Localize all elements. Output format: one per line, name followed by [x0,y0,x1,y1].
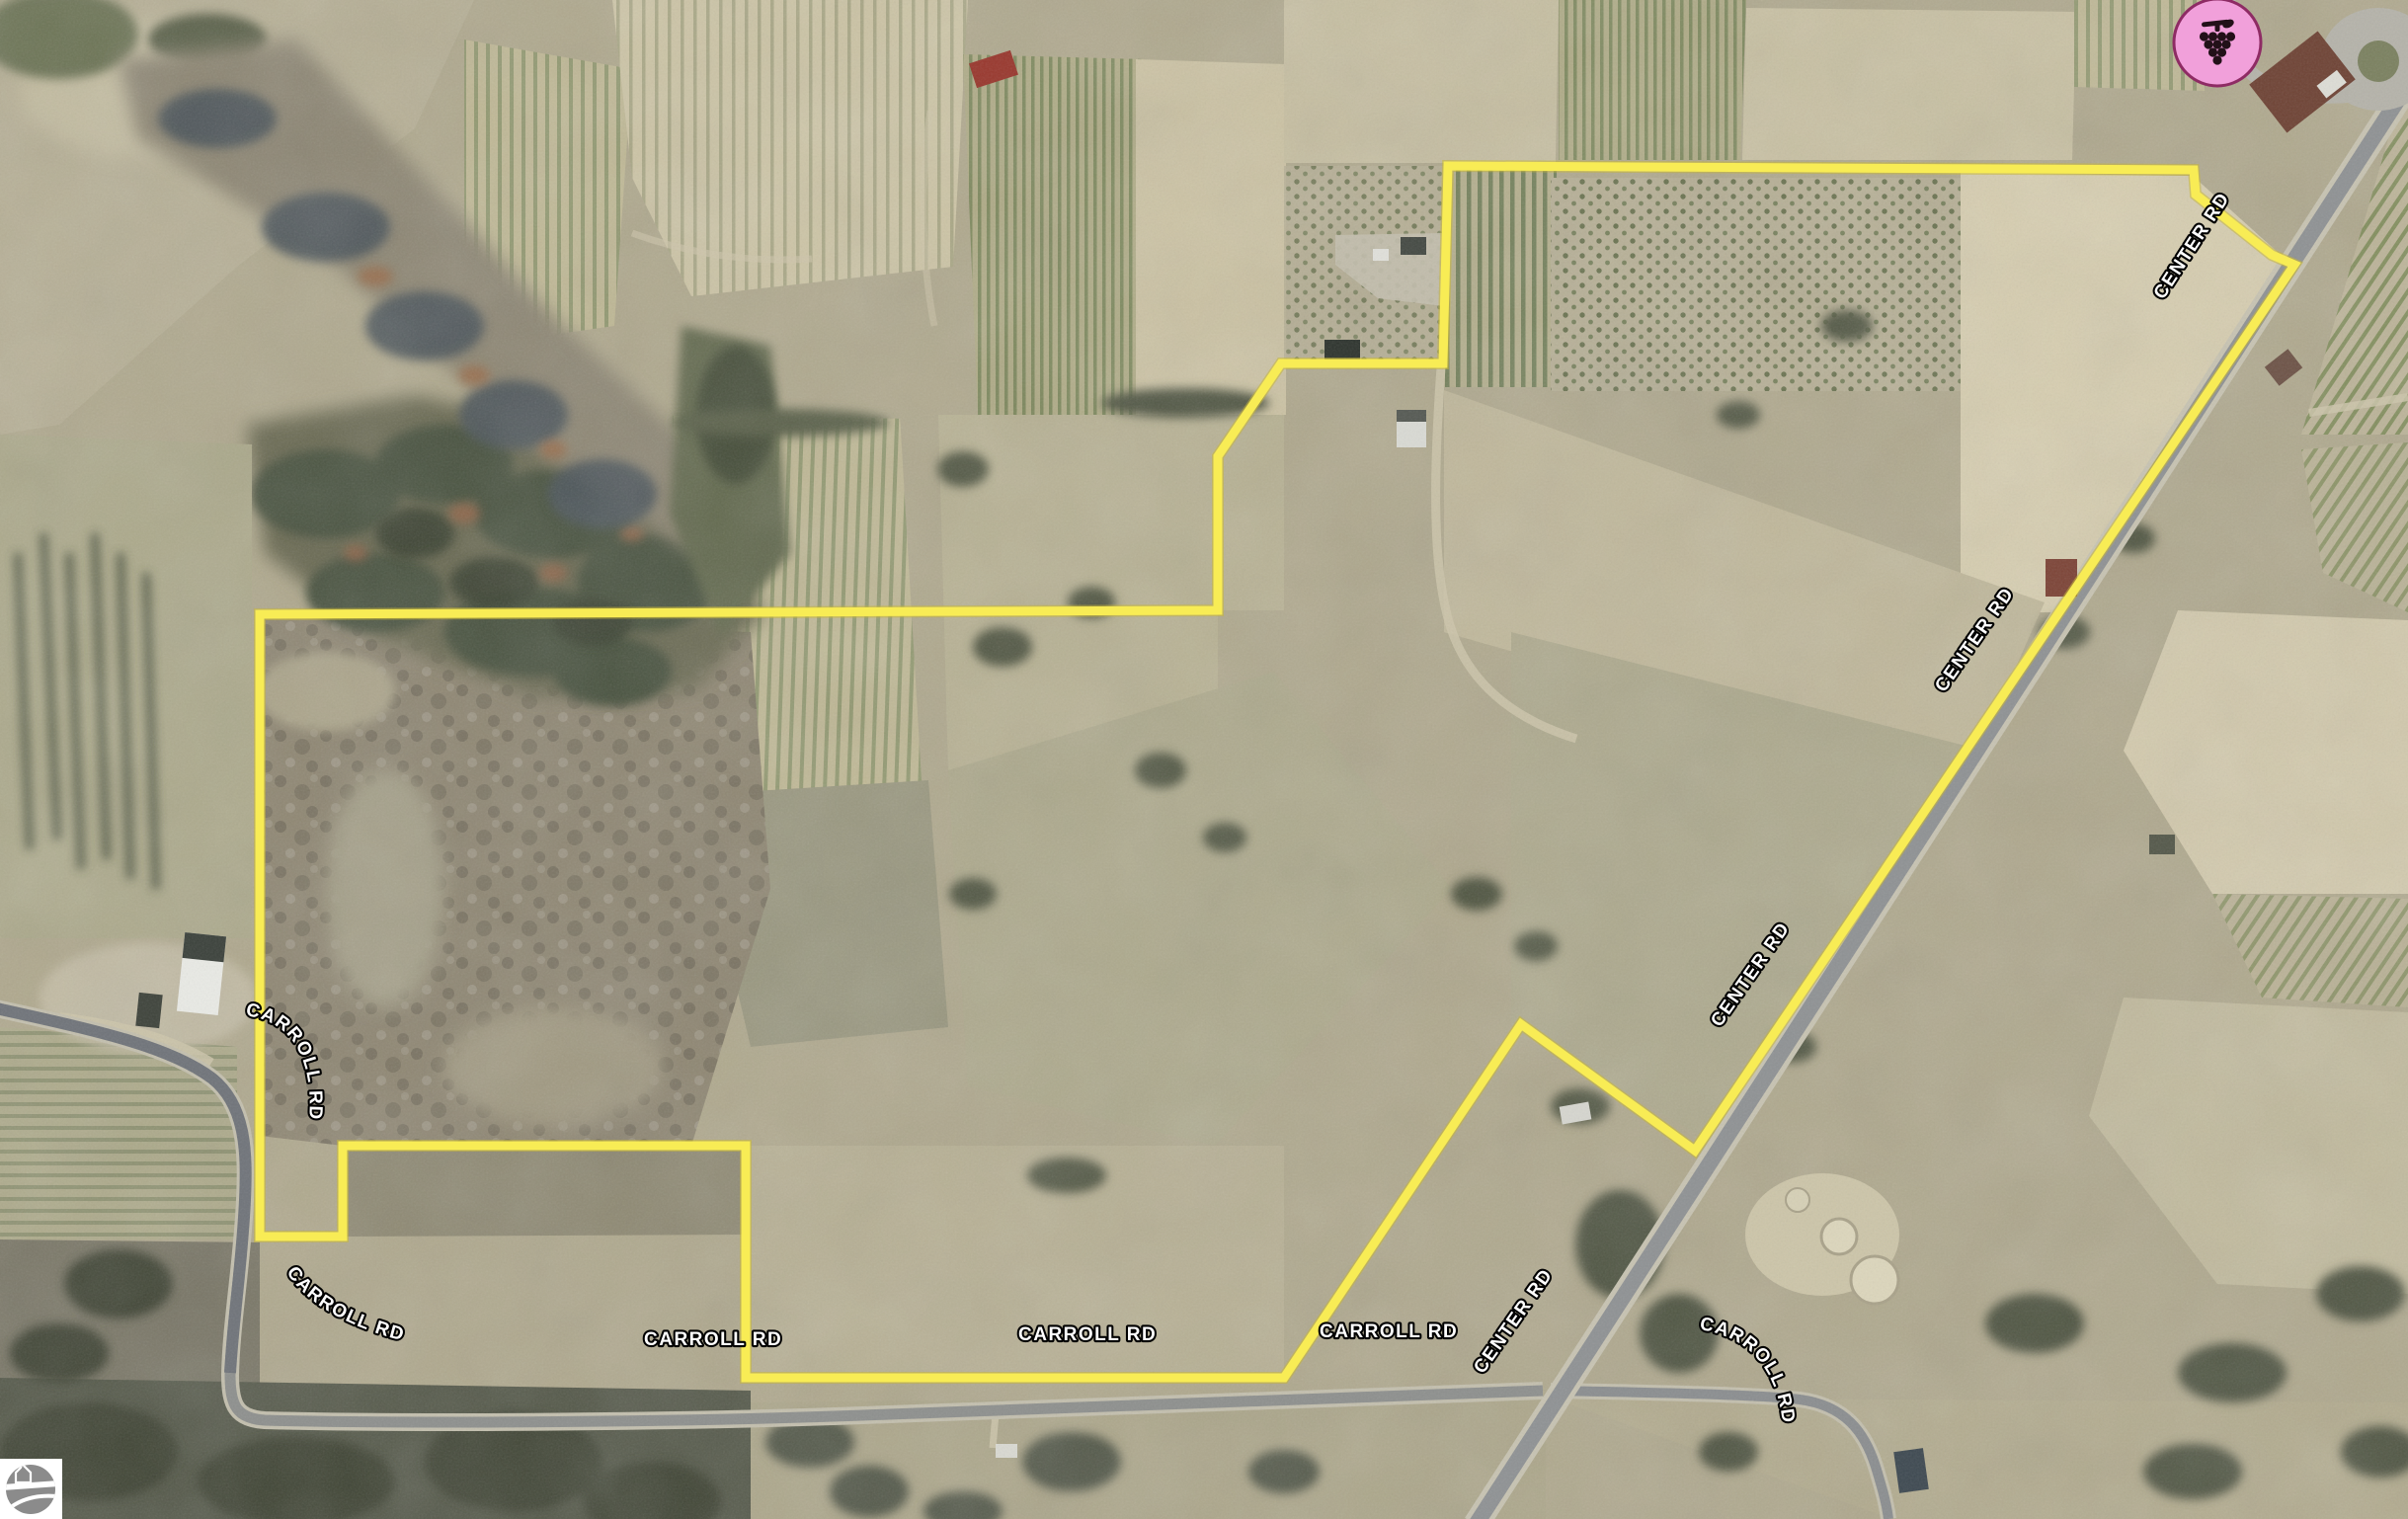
photo-grain-overlay [0,0,2408,1519]
attribution-logo [0,1459,62,1519]
aerial-map[interactable]: CARROLL RD CARROLL RD CARROLL RD CARROLL… [0,0,2408,1519]
carroll-rd-label-3: CARROLL RD [644,1329,782,1350]
winery-marker[interactable] [2174,0,2261,86]
carroll-rd-label-4: CARROLL RD [1018,1324,1157,1345]
aerial-map-viewport[interactable]: CARROLL RD CARROLL RD CARROLL RD CARROLL… [0,0,2408,1519]
carroll-rd-label-5: CARROLL RD [1320,1321,1458,1342]
